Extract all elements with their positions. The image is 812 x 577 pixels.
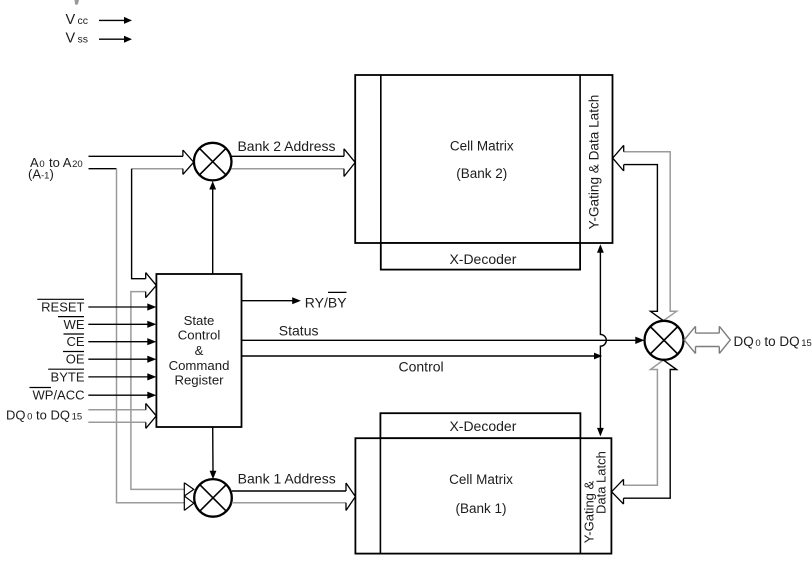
svg-text:(A-1): (A-1) xyxy=(28,167,54,182)
svg-text:RY/BY: RY/BY xyxy=(305,294,347,310)
svg-text:WP/ACC: WP/ACC xyxy=(33,388,85,403)
svg-text:(Bank 2): (Bank 2) xyxy=(456,166,507,181)
svg-text:Data Latch: Data Latch xyxy=(594,451,609,514)
svg-text:Status: Status xyxy=(279,322,319,338)
svg-text:(Bank 1): (Bank 1) xyxy=(455,501,506,516)
svg-text:Cell Matrix: Cell Matrix xyxy=(449,472,513,487)
svg-text:V: V xyxy=(66,31,76,47)
svg-text:State: State xyxy=(184,313,215,328)
svg-text:WE: WE xyxy=(64,317,85,332)
svg-text:X-Decoder: X-Decoder xyxy=(449,418,516,434)
svg-text:CE: CE xyxy=(66,334,84,349)
svg-text:RESET: RESET xyxy=(41,300,84,315)
svg-text:Control: Control xyxy=(178,328,221,343)
svg-text:Control: Control xyxy=(399,359,444,375)
svg-text:&: & xyxy=(195,343,204,358)
svg-text:Bank 1 Address: Bank 1 Address xyxy=(238,471,336,487)
svg-text:ss: ss xyxy=(78,34,89,46)
svg-text:V: V xyxy=(66,12,76,28)
svg-text:Register: Register xyxy=(174,373,224,388)
svg-text:cc: cc xyxy=(78,15,89,27)
svg-text:Y-Gating & Data Latch: Y-Gating & Data Latch xyxy=(587,95,602,230)
svg-text:BYTE: BYTE xyxy=(51,369,85,384)
svg-text:Command: Command xyxy=(169,358,230,373)
svg-text:X-Decoder: X-Decoder xyxy=(449,251,516,267)
svg-text:Bank 2 Address: Bank 2 Address xyxy=(237,138,335,154)
svg-text:OE: OE xyxy=(66,352,85,367)
svg-text:Cell Matrix: Cell Matrix xyxy=(450,138,514,153)
